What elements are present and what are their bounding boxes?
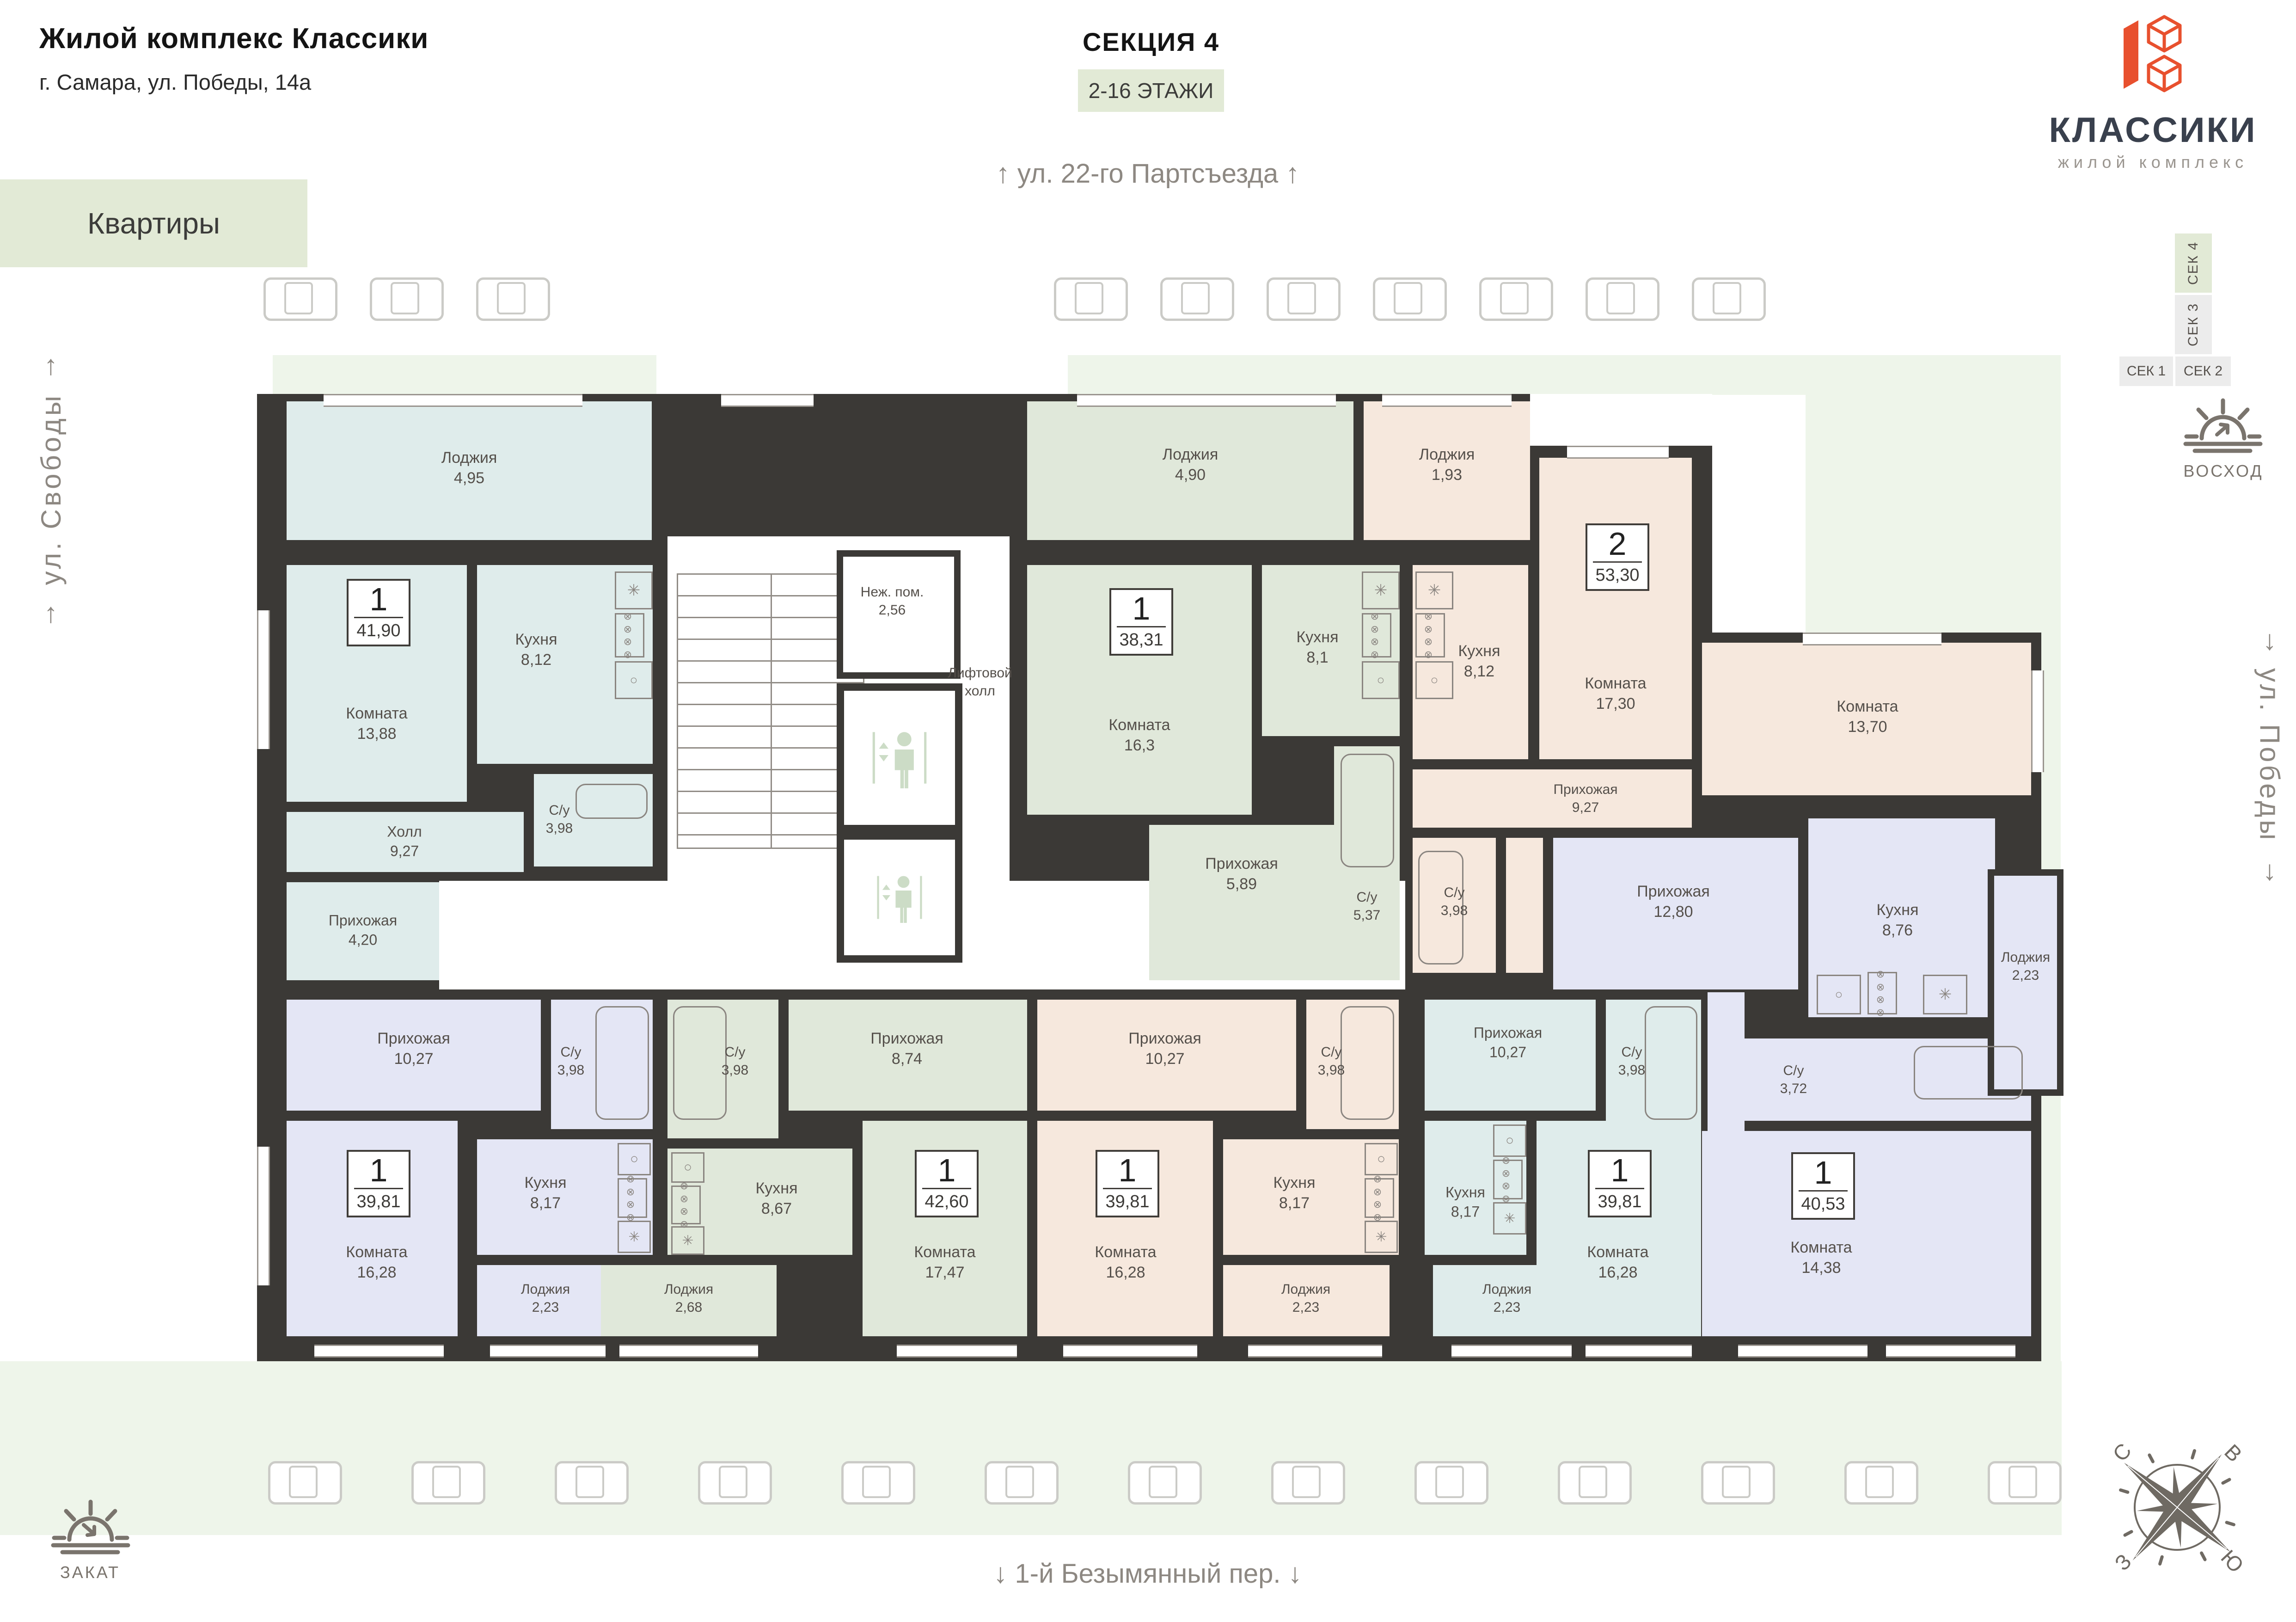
room-label: С/у3,98: [557, 1043, 584, 1079]
room-label: Комната17,47: [914, 1242, 975, 1283]
window: [1077, 394, 1336, 407]
svg-text:В: В: [2220, 1439, 2247, 1466]
sunrise-label: ВОСХОД: [2168, 461, 2279, 481]
window: [324, 394, 582, 407]
car-icon: [1844, 1461, 1918, 1505]
sink-icon: ○: [1415, 661, 1453, 699]
apartment-badge: 141,90: [347, 579, 410, 646]
bathtub-icon: [576, 784, 648, 819]
svg-text:С: С: [2108, 1438, 2136, 1466]
room-label: Прихожая10,27: [377, 1028, 450, 1069]
page-title: Жилой комплекс Классики: [39, 22, 429, 55]
room-label: Кухня8,17: [1445, 1183, 1485, 1221]
elevator-person-icon: [876, 865, 923, 930]
room-label: Лоджия2,23: [2001, 948, 2050, 984]
elevator-person-icon: [872, 719, 927, 797]
fridge-icon: ✳: [1415, 571, 1453, 609]
fridge-icon: ✳: [615, 571, 653, 609]
street-left: ↑ ул. Свободы ↑: [18, 349, 83, 629]
fridge-icon: ✳: [1362, 571, 1400, 609]
page-subtitle: г. Самара, ул. Победы, 14а: [39, 69, 311, 95]
site-lawn: [0, 1361, 2062, 1535]
apartment-badge: 138,31: [1109, 588, 1173, 656]
room-label: С/у3,72: [1780, 1062, 1807, 1098]
sink-icon: ○: [618, 1143, 651, 1175]
room-label: Кухня8,67: [756, 1178, 798, 1219]
bathtub-icon: [1645, 1006, 1697, 1120]
room-label: Холл9,27: [387, 822, 422, 860]
room-label: Прихожая10,27: [1474, 1023, 1542, 1062]
bathtub-icon: [1341, 754, 1394, 867]
window: [1451, 1345, 1572, 1358]
sink-icon: ○: [1493, 1124, 1526, 1157]
stove-icon: ⊗ ⊗ ⊗ ⊗: [1493, 1160, 1523, 1199]
stove-icon: ⊗ ⊗ ⊗ ⊗: [671, 1186, 701, 1224]
window: [1382, 394, 1512, 407]
apartments-label: Квартиры: [0, 179, 307, 267]
room-label: С/у3,98: [1318, 1043, 1345, 1079]
room-label: Прихожая12,80: [1637, 881, 1710, 922]
room-label: С/у3,98: [1441, 884, 1468, 920]
room-label: С/у3,98: [1618, 1043, 1645, 1079]
room-a3-living-1: [1539, 458, 1692, 759]
room-label: Лоджия4,95: [441, 448, 497, 488]
compass-icon: С В З Ю: [2094, 1424, 2260, 1591]
room-label: Комната14,38: [1790, 1237, 1852, 1278]
room-label: Комната16,28: [346, 1242, 407, 1283]
room-label: Кухня8,17: [525, 1173, 567, 1213]
window: [314, 1345, 444, 1358]
floor-plan-page: Жилой комплекс Классики г. Самара, ул. П…: [0, 0, 2296, 1622]
room-label: Комната16,28: [1587, 1242, 1648, 1283]
street-right: ↓ ул. Победы ↓: [2237, 624, 2296, 886]
car-icon: [1558, 1461, 1632, 1505]
apartment-badge: 139,81: [1096, 1150, 1159, 1217]
room-label: Лоджия2,23: [1482, 1280, 1531, 1316]
bathtub-icon: [595, 1006, 649, 1120]
car-icon: [1160, 277, 1234, 321]
sink-icon: ○: [671, 1152, 704, 1183]
stove-icon: ⊗ ⊗ ⊗ ⊗: [1365, 1178, 1394, 1218]
window: [1738, 1345, 1867, 1358]
window: [1803, 633, 1941, 645]
room-a3-entry: [1506, 838, 1543, 973]
site-lawn: [273, 355, 656, 395]
apartment-badge: 139,81: [347, 1150, 410, 1217]
room-label: Кухня8,12: [515, 629, 557, 670]
room-label: Лоджия2,23: [521, 1280, 570, 1316]
window: [1063, 1345, 1197, 1358]
apartment-badge: 253,30: [1586, 523, 1649, 591]
room-label: Лоджия2,68: [664, 1280, 713, 1316]
brand-tagline: жилой комплекс: [2034, 153, 2272, 172]
car-icon: [263, 277, 337, 321]
sink-icon: ○: [1365, 1143, 1398, 1175]
room-label: Прихожая5,89: [1205, 854, 1278, 894]
sink-icon: ○: [1817, 975, 1861, 1014]
bathtub-icon: [673, 1006, 727, 1120]
elevator-shaft: [837, 683, 962, 832]
room-label: Комната13,88: [346, 703, 407, 744]
room-label: С/у3,98: [546, 801, 573, 837]
car-icon: [476, 277, 550, 321]
room-label: Лоджия1,93: [1419, 444, 1475, 485]
car-icon: [1692, 277, 1766, 321]
stove-icon: ⊗ ⊗ ⊗ ⊗: [615, 613, 644, 657]
room-label: Кухня8,17: [1274, 1173, 1316, 1213]
core-label: Лифтовойхолл: [948, 664, 1012, 700]
car-icon: [1414, 1461, 1488, 1505]
window: [257, 1147, 270, 1285]
bathtub-icon: [1341, 1006, 1394, 1120]
facade-notch: [1530, 394, 1712, 446]
window: [1248, 1345, 1382, 1358]
fridge-icon: ✳: [1923, 975, 1967, 1014]
car-icon: [841, 1461, 915, 1505]
svg-text:Ю: Ю: [2216, 1545, 2249, 1577]
stove-icon: ⊗ ⊗ ⊗ ⊗: [1867, 972, 1897, 1014]
stove-icon: ⊗ ⊗ ⊗ ⊗: [1415, 613, 1445, 657]
core-label: Неж. пом.2,56: [861, 583, 924, 619]
fridge-icon: ✳: [618, 1221, 651, 1253]
room-label: Прихожая4,20: [329, 911, 397, 949]
bathtub-icon: [1914, 1046, 2023, 1100]
window: [721, 394, 814, 407]
fridge-icon: ✳: [1365, 1221, 1398, 1253]
stove-icon: ⊗ ⊗ ⊗ ⊗: [1362, 613, 1391, 657]
window: [257, 610, 270, 749]
sink-icon: ○: [615, 661, 653, 699]
room-label: Комната13,70: [1837, 696, 1898, 737]
room-label: Прихожая9,27: [1553, 780, 1617, 817]
car-icon: [698, 1461, 772, 1505]
room-label: Лоджия2,23: [1281, 1280, 1330, 1316]
car-icon: [1128, 1461, 1202, 1505]
stove-icon: ⊗ ⊗ ⊗ ⊗: [618, 1178, 647, 1218]
sunset-icon: [46, 1493, 134, 1558]
sink-icon: ○: [1362, 661, 1400, 699]
room-label: Кухня8,1: [1297, 627, 1339, 668]
car-icon: [1373, 277, 1447, 321]
room-label: С/у5,37: [1353, 888, 1380, 924]
room-a4-living: [1702, 1131, 2031, 1336]
window: [1886, 1345, 2015, 1358]
car-icon: [1271, 1461, 1345, 1505]
arrow-up-icon: ↑: [1286, 158, 1299, 189]
section-title: СЕКЦИЯ 4: [1008, 27, 1294, 57]
brand-cube-logo-icon: [2122, 10, 2186, 105]
window: [1586, 1345, 1692, 1358]
arrow-up-icon: ↑: [44, 597, 58, 629]
room-label: Лоджия4,90: [1163, 444, 1218, 485]
tab-sek-3[interactable]: СЕК 3: [2175, 295, 2212, 354]
fridge-icon: ✳: [671, 1226, 704, 1255]
sunrise-icon: [2181, 392, 2264, 457]
tab-sek-4[interactable]: СЕК 4: [2175, 233, 2212, 293]
room-a3-entry: [1413, 769, 1692, 828]
sunset-label: ЗАКАТ: [37, 1563, 143, 1582]
car-icon: [1054, 277, 1128, 321]
tab-sek-1[interactable]: СЕК 1: [2119, 356, 2173, 386]
car-icon: [985, 1461, 1059, 1505]
car-icon: [1701, 1461, 1775, 1505]
room-label: Комната16,3: [1108, 715, 1170, 756]
window: [619, 1345, 758, 1358]
street-bottom: ↓ 1-й Безымянный пер. ↓: [993, 1557, 1302, 1589]
svg-text:З: З: [2110, 1549, 2136, 1575]
brand-name: КЛАССИКИ: [2034, 110, 2272, 150]
car-icon: [1586, 277, 1659, 321]
arrow-down-icon: ↓: [2263, 624, 2277, 656]
window: [490, 1345, 606, 1358]
arrow-up-icon: ↑: [44, 349, 58, 381]
arrow-down-icon: ↓: [2263, 854, 2277, 886]
tab-sek-2[interactable]: СЕК 2: [2175, 356, 2231, 386]
car-icon: [1988, 1461, 2062, 1505]
car-icon: [1479, 277, 1553, 321]
car-icon: [370, 277, 444, 321]
room-label: Кухня8,76: [1877, 900, 1919, 940]
room-label: Комната16,28: [1095, 1242, 1156, 1283]
arrow-down-icon: ↓: [993, 1558, 1007, 1589]
apartment-badge: 142,60: [915, 1150, 979, 1217]
room-label: Кухня8,12: [1458, 641, 1500, 682]
window: [1567, 446, 1669, 459]
car-icon: [268, 1461, 342, 1505]
floors-badge: 2-16 ЭТАЖИ: [1078, 69, 1224, 112]
street-top: ↑ ул. 22-го Партсъезда ↑: [996, 157, 1300, 189]
fridge-icon: ✳: [1493, 1202, 1526, 1235]
room-a4-entry: [1708, 992, 1745, 1131]
car-icon: [1267, 277, 1341, 321]
window: [2031, 670, 2044, 772]
car-icon: [555, 1461, 629, 1505]
room-label: Прихожая10,27: [1128, 1028, 1201, 1069]
elevator-shaft: [837, 832, 962, 963]
car-icon: [411, 1461, 485, 1505]
room-label: Комната17,30: [1585, 673, 1646, 714]
room-label: С/у3,98: [722, 1043, 748, 1079]
room-label: Прихожая8,74: [870, 1028, 943, 1069]
apartment-badge: 140,53: [1791, 1152, 1855, 1220]
arrow-up-icon: ↑: [996, 158, 1010, 189]
room-a2-entry: [1149, 825, 1334, 980]
site-lawn: [1068, 355, 1877, 395]
arrow-down-icon: ↓: [1288, 1558, 1302, 1589]
window: [897, 1345, 1017, 1358]
apartment-badge: 139,81: [1588, 1150, 1652, 1217]
